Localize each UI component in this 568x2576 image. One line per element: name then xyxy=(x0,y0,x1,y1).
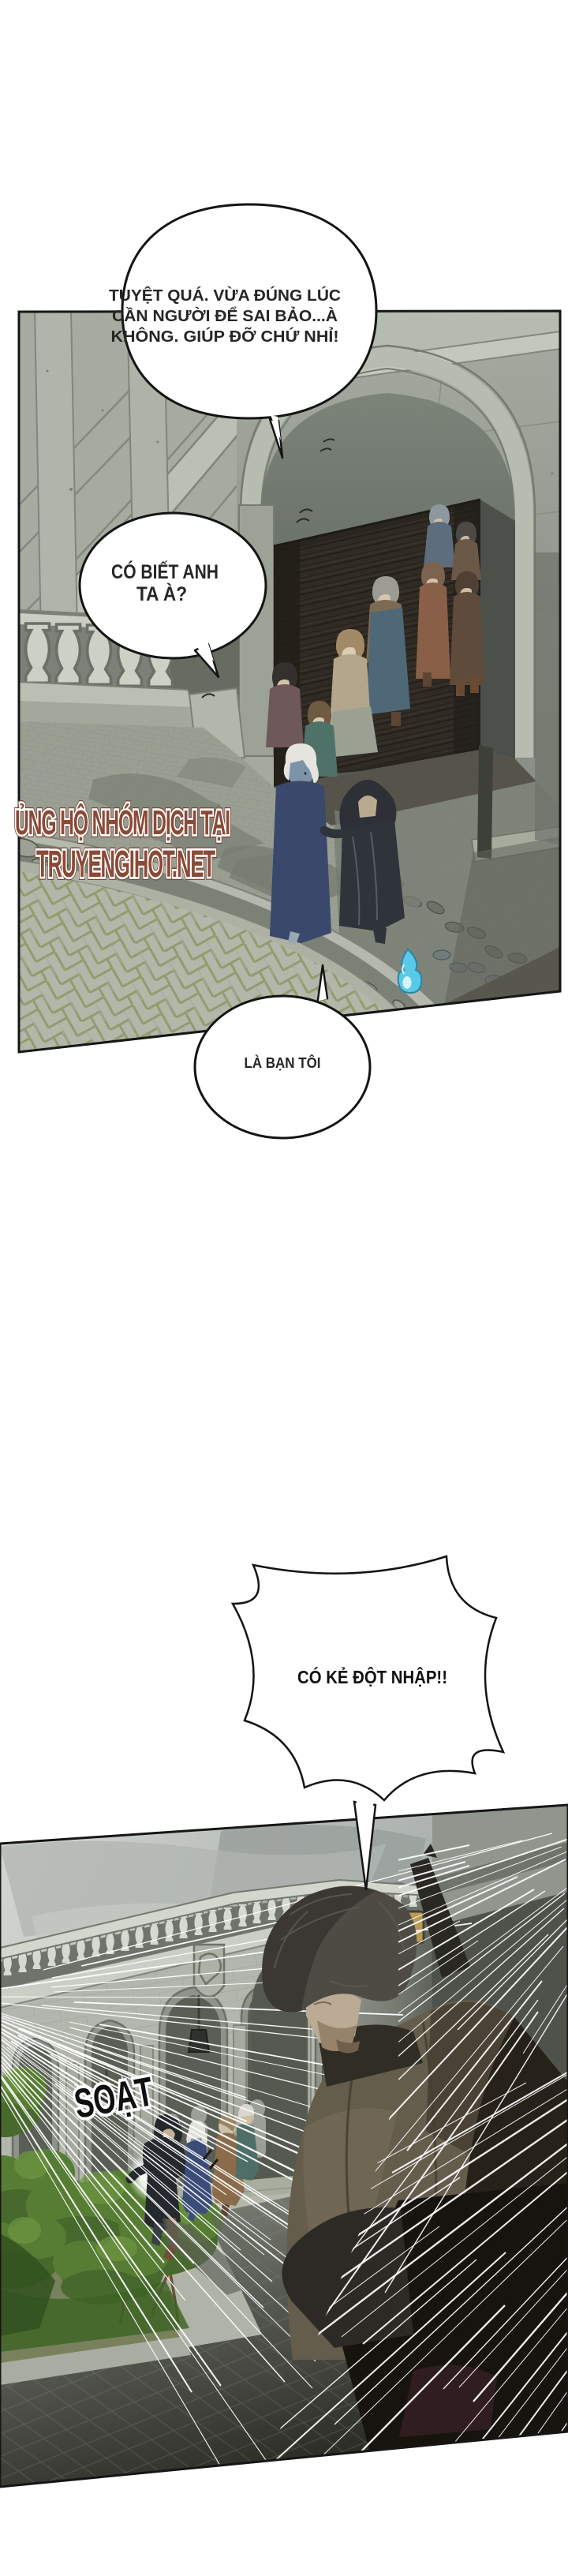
svg-text:CÓ KẺ ĐỘT NHẬP!!: CÓ KẺ ĐỘT NHẬP!! xyxy=(297,1665,447,1687)
svg-text:TA À?: TA À? xyxy=(136,582,187,605)
svg-text:ỦNG HỘ NHÓM DỊCH TẠI: ỦNG HỘ NHÓM DỊCH TẠI xyxy=(15,802,230,842)
svg-text:CẦN NGƯỜI ĐỂ SAI BẢO...À: CẦN NGƯỜI ĐỂ SAI BẢO...À xyxy=(112,306,338,325)
svg-text:KHÔNG. GIÚP ĐỠ CHỨ NHỈ!: KHÔNG. GIÚP ĐỠ CHỨ NHỈ! xyxy=(111,327,339,346)
svg-text:TRUYENGIHOT.NET: TRUYENGIHOT.NET xyxy=(36,844,215,885)
svg-text:LÀ BẠN TÔI: LÀ BẠN TÔI xyxy=(245,1054,321,1071)
svg-text:TUYỆT QUÁ. VỪA ĐÚNG LÚC: TUYỆT QUÁ. VỪA ĐÚNG LÚC xyxy=(109,286,341,305)
svg-text:CÓ BIẾT ANH: CÓ BIẾT ANH xyxy=(111,560,219,583)
